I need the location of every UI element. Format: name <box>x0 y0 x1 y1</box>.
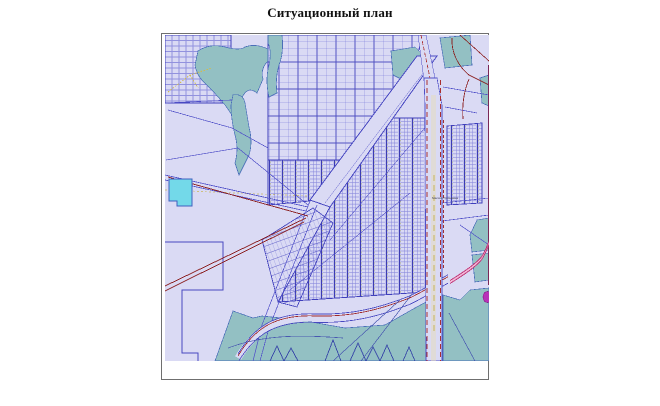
situational-plan-map: Массив Грязновка <box>165 35 489 361</box>
page-title: Ситуационный план <box>0 5 660 21</box>
map-label-massiv: Массив Грязновка <box>432 196 458 200</box>
report-page: Ситуационный план <box>0 0 660 406</box>
